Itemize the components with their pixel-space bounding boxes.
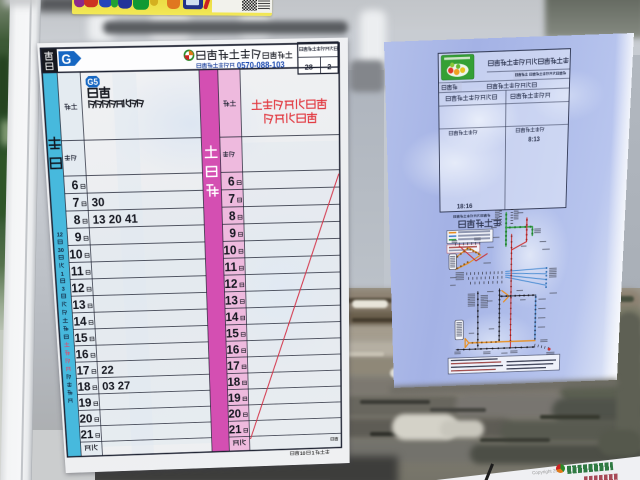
svg-text:18:16: 18:16 <box>457 203 473 210</box>
svg-text:20: 20 <box>228 407 241 420</box>
svg-text:9: 9 <box>229 226 236 240</box>
svg-text:15: 15 <box>74 331 88 345</box>
svg-text:30: 30 <box>91 196 105 210</box>
svg-text:7: 7 <box>72 195 80 209</box>
svg-text:18: 18 <box>77 380 91 394</box>
svg-text:8: 8 <box>229 209 236 223</box>
svg-text:21: 21 <box>80 428 94 441</box>
svg-text:12: 12 <box>224 277 238 291</box>
svg-text:16: 16 <box>75 347 89 361</box>
svg-text:14: 14 <box>225 310 239 324</box>
svg-text:13 20 41: 13 20 41 <box>92 212 138 226</box>
svg-text:6: 6 <box>228 174 235 189</box>
svg-text:21: 21 <box>229 423 242 436</box>
svg-text:8:13: 8:13 <box>528 136 540 143</box>
svg-text:11: 11 <box>224 260 237 274</box>
svg-text:12: 12 <box>71 281 85 295</box>
svg-text:G: G <box>61 51 72 66</box>
svg-text:1: 1 <box>312 451 316 456</box>
svg-text:17: 17 <box>76 364 90 378</box>
svg-text:6: 6 <box>71 178 79 193</box>
svg-text:10: 10 <box>69 247 83 261</box>
svg-text:20: 20 <box>79 412 93 425</box>
svg-text:22: 22 <box>101 364 114 377</box>
svg-text:8: 8 <box>73 212 81 226</box>
svg-text:14: 14 <box>73 314 88 328</box>
svg-text:12: 12 <box>57 233 64 239</box>
svg-text:9: 9 <box>74 230 82 244</box>
svg-text:13: 13 <box>225 293 238 307</box>
svg-text:7: 7 <box>228 191 235 205</box>
svg-text:10: 10 <box>300 451 306 456</box>
svg-text:15: 15 <box>226 326 239 340</box>
svg-text:19: 19 <box>228 391 241 405</box>
svg-text:G5: G5 <box>87 77 99 87</box>
svg-text:18: 18 <box>227 375 240 389</box>
svg-text:17: 17 <box>227 359 240 373</box>
svg-text:10: 10 <box>223 243 237 257</box>
svg-text:19: 19 <box>78 396 92 410</box>
svg-text:13: 13 <box>72 298 86 312</box>
svg-text:03 27: 03 27 <box>102 380 131 393</box>
svg-text:11: 11 <box>70 264 84 278</box>
svg-text:30: 30 <box>58 248 64 254</box>
svg-text:16: 16 <box>226 343 239 357</box>
